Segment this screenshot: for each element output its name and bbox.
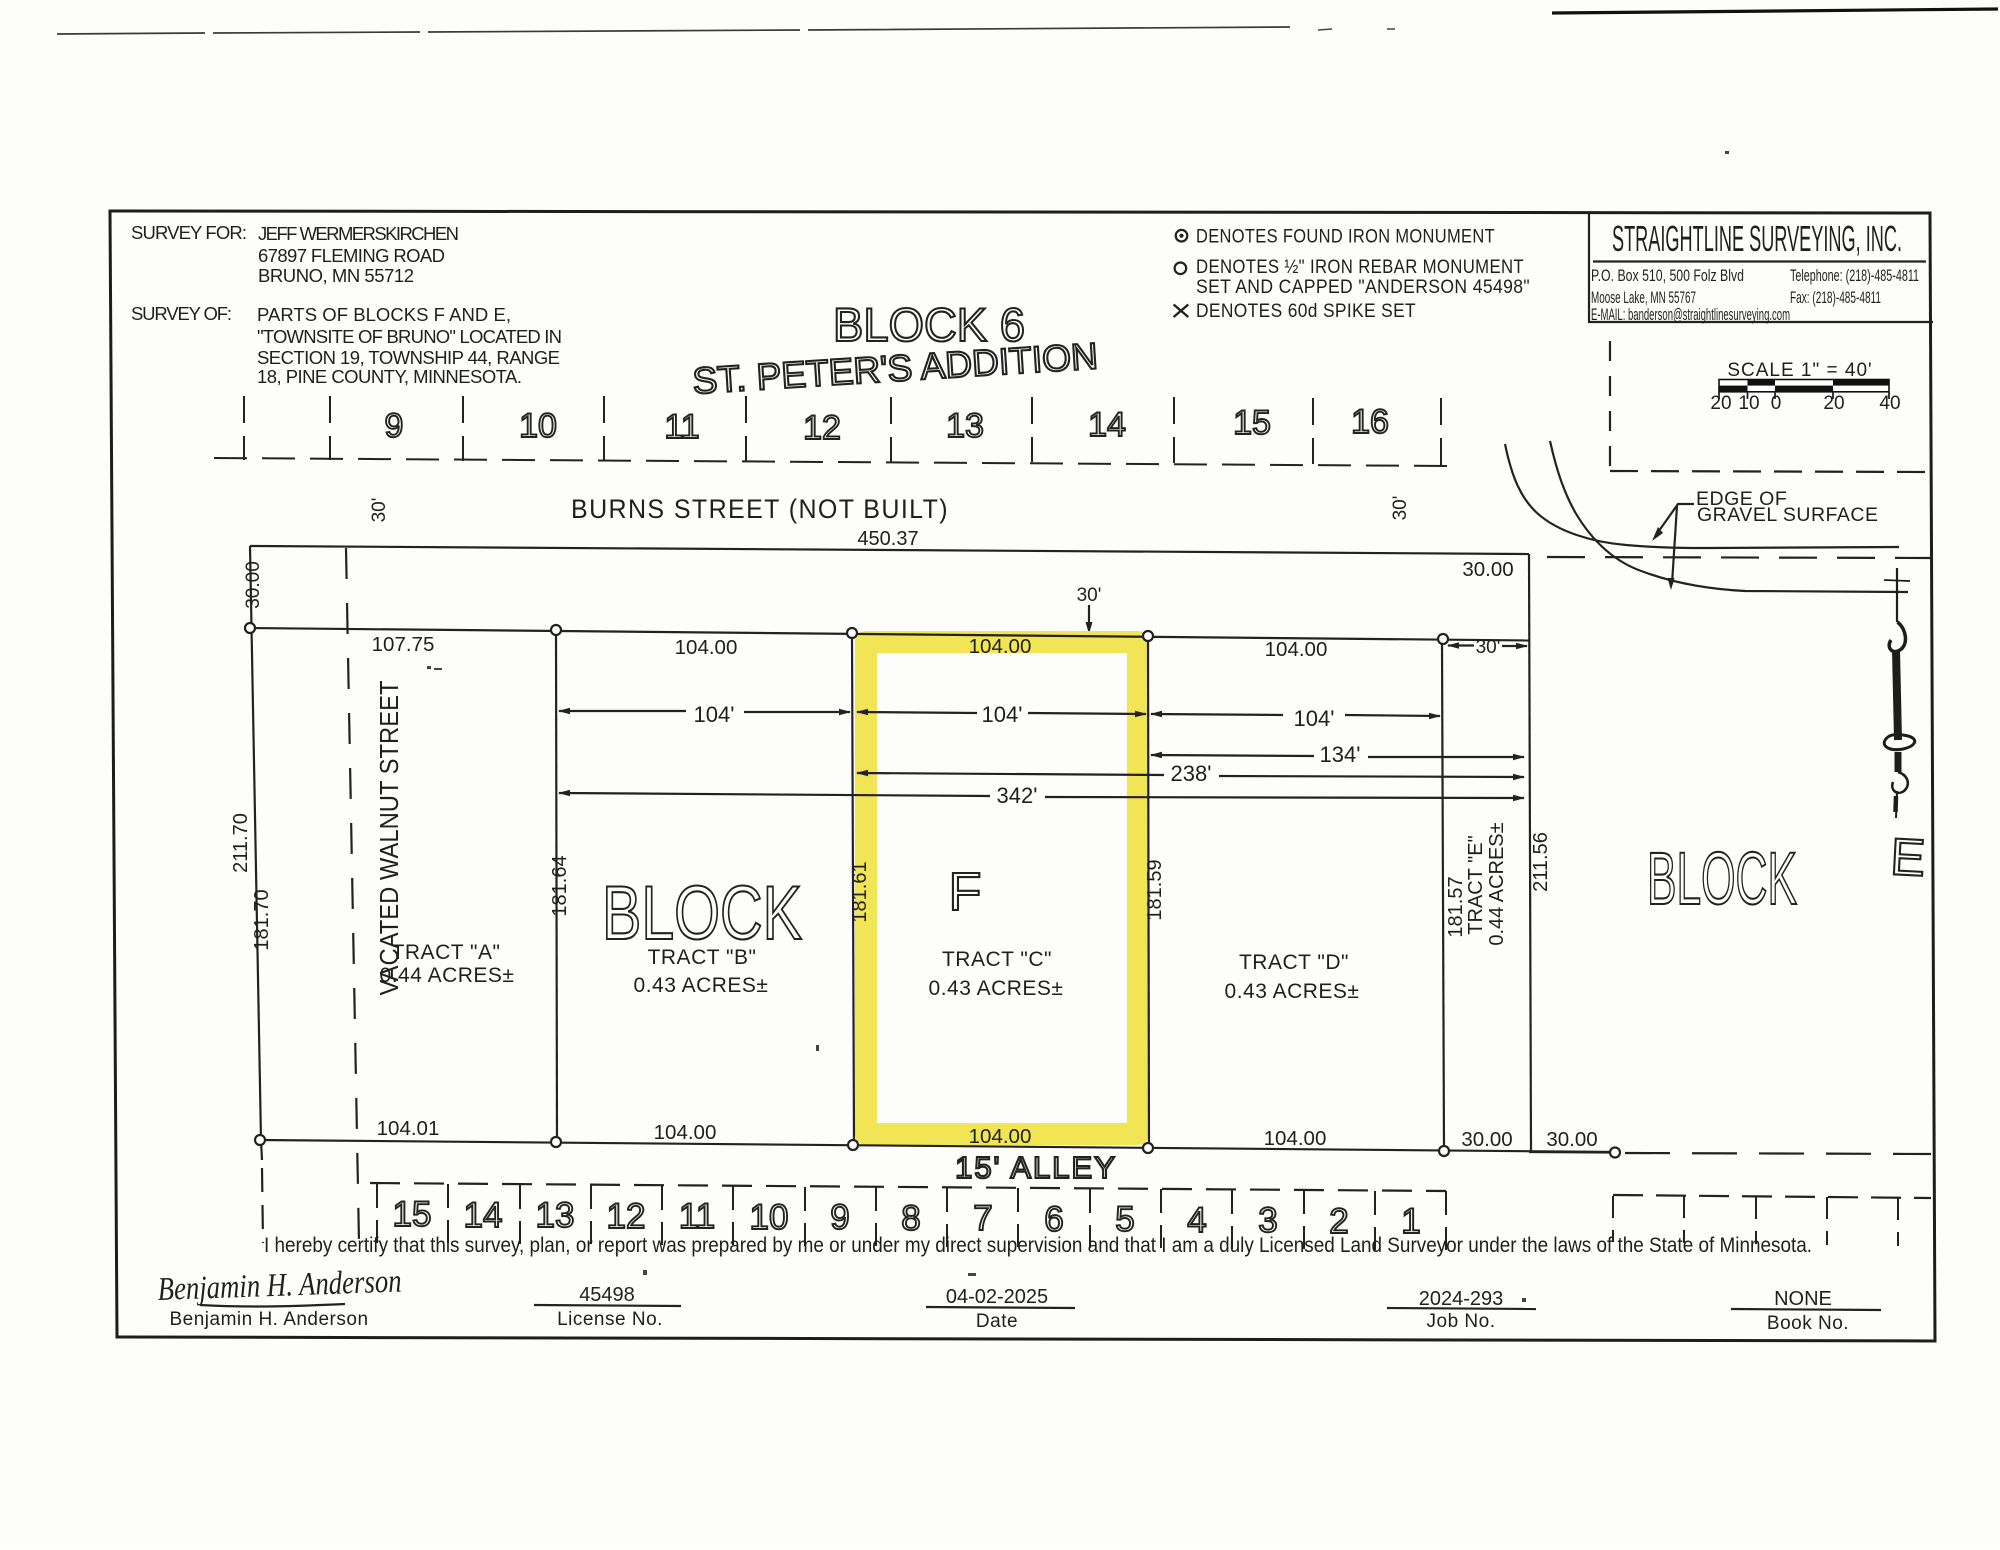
svg-text:I hereby certify that this sur: I hereby certify that this survey, plan,… — [264, 1234, 1812, 1257]
svg-text:BLOCK: BLOCK — [602, 871, 802, 956]
svg-text:104': 104' — [694, 702, 735, 727]
svg-text:BURNS STREET (NOT BUILT): BURNS STREET (NOT BUILT) — [571, 494, 949, 524]
svg-text:TRACT "E": TRACT "E" — [1465, 835, 1487, 934]
svg-text:450.37: 450.37 — [857, 528, 918, 550]
svg-text:GRAVEL SURFACE: GRAVEL SURFACE — [1697, 504, 1878, 526]
svg-text:30.00: 30.00 — [1462, 558, 1513, 581]
svg-text:211.56: 211.56 — [1530, 832, 1552, 892]
svg-text:104.01: 104.01 — [377, 1117, 440, 1140]
svg-text:Fax: (218)-485-4811: Fax: (218)-485-4811 — [1790, 289, 1881, 307]
svg-text:14: 14 — [1088, 406, 1126, 444]
svg-text:Telephone: (218)-485-4811: Telephone: (218)-485-4811 — [1790, 267, 1919, 285]
svg-text:181.61: 181.61 — [849, 861, 871, 922]
svg-text:SURVEY FOR:: SURVEY FOR: — [131, 222, 247, 243]
svg-text:211.70: 211.70 — [230, 813, 252, 873]
svg-text:0.43 ACRES±: 0.43 ACRES± — [929, 977, 1064, 1000]
svg-text:30': 30' — [1077, 585, 1102, 606]
svg-text:12: 12 — [803, 409, 841, 447]
svg-text:TRACT "D": TRACT "D" — [1239, 951, 1349, 974]
svg-text:0.44 ACRES±: 0.44 ACRES± — [380, 964, 515, 987]
svg-text:Date: Date — [976, 1311, 1018, 1332]
svg-text:TRACT "A": TRACT "A" — [392, 941, 501, 964]
svg-text:30.00: 30.00 — [1546, 1128, 1597, 1151]
svg-text:BRUNO, MN 55712: BRUNO, MN 55712 — [258, 265, 414, 286]
svg-text:Book No.: Book No. — [1767, 1313, 1849, 1334]
svg-text:30': 30' — [1390, 496, 1411, 521]
svg-text:30.00: 30.00 — [243, 561, 264, 609]
svg-text:10: 10 — [1738, 393, 1759, 414]
svg-text:2024-293: 2024-293 — [1419, 1288, 1504, 1310]
svg-text:134': 134' — [1320, 742, 1361, 767]
svg-text:9: 9 — [385, 407, 404, 445]
svg-text:8: 8 — [901, 1199, 920, 1238]
svg-text:104.00: 104.00 — [969, 1125, 1032, 1148]
svg-text:SECTION 19, TOWNSHIP 44, RANGE: SECTION 19, TOWNSHIP 44, RANGE — [257, 347, 560, 368]
svg-text:16: 16 — [1351, 403, 1389, 441]
svg-text:7: 7 — [973, 1199, 992, 1238]
svg-text:15: 15 — [393, 1195, 432, 1234]
svg-text:0.43 ACRES±: 0.43 ACRES± — [634, 974, 769, 997]
svg-text:0.43 ACRES±: 0.43 ACRES± — [1225, 980, 1360, 1003]
svg-text:10: 10 — [750, 1198, 789, 1237]
svg-text:181.64: 181.64 — [549, 855, 571, 916]
svg-text:PARTS OF BLOCKS F AND E,: PARTS OF BLOCKS F AND E, — [257, 304, 511, 325]
svg-text:04-02-2025: 04-02-2025 — [946, 1286, 1048, 1308]
svg-text:SURVEY OF:: SURVEY OF: — [131, 303, 232, 324]
svg-text:NONE: NONE — [1774, 1288, 1832, 1310]
svg-text:"TOWNSITE OF BRUNO" LOCATED IN: "TOWNSITE OF BRUNO" LOCATED IN — [257, 326, 562, 347]
svg-text:STRAIGHTLINE SURVEYING, INC.: STRAIGHTLINE SURVEYING, INC. — [1612, 218, 1902, 259]
svg-text:E: E — [1889, 828, 1927, 888]
svg-text:13: 13 — [946, 407, 984, 445]
svg-text:30': 30' — [1476, 637, 1501, 658]
svg-text:13: 13 — [536, 1196, 575, 1235]
svg-text:BLOCK: BLOCK — [1647, 837, 1797, 920]
svg-text:DENOTES FOUND IRON MONUMENT: DENOTES FOUND IRON MONUMENT — [1196, 226, 1495, 248]
svg-text:181.70: 181.70 — [251, 889, 273, 950]
svg-text:License No.: License No. — [557, 1309, 663, 1330]
svg-text:30.00: 30.00 — [1461, 1128, 1512, 1151]
svg-text:18, PINE COUNTY, MINNESOTA.: 18, PINE COUNTY, MINNESOTA. — [257, 366, 522, 387]
svg-text:F: F — [949, 862, 982, 922]
svg-text:107.75: 107.75 — [372, 633, 435, 656]
svg-text:9: 9 — [830, 1198, 849, 1237]
svg-text:15: 15 — [1233, 404, 1271, 442]
svg-text:20: 20 — [1710, 393, 1731, 414]
svg-text:E-MAIL: banderson@straightline: E-MAIL: banderson@straightlinesurveying.… — [1591, 306, 1790, 324]
svg-text:104': 104' — [1294, 706, 1335, 731]
svg-text:DENOTES ½" IRON REBAR MONUMENT: DENOTES ½" IRON REBAR MONUMENT — [1196, 256, 1524, 278]
svg-text:20: 20 — [1823, 393, 1844, 414]
svg-text:12: 12 — [607, 1197, 646, 1236]
svg-text:Job No.: Job No. — [1427, 1311, 1496, 1332]
svg-text:P.O. Box 510, 500 Folz Blvd: P.O. Box 510, 500 Folz Blvd — [1591, 267, 1744, 285]
svg-text:SCALE 1" = 40': SCALE 1" = 40' — [1727, 360, 1872, 381]
svg-text:104.00: 104.00 — [1264, 1127, 1327, 1150]
svg-text:104.00: 104.00 — [1265, 638, 1328, 661]
svg-text:0.44 ACRES±: 0.44 ACRES± — [1486, 822, 1508, 945]
svg-text:0: 0 — [1771, 393, 1782, 414]
svg-text:JEFF WERMERSKIRCHEN: JEFF WERMERSKIRCHEN — [258, 223, 459, 244]
svg-text:45498: 45498 — [579, 1284, 635, 1306]
svg-text:10: 10 — [519, 407, 557, 445]
svg-text:11: 11 — [664, 408, 699, 446]
svg-text:104.00: 104.00 — [654, 1121, 717, 1144]
svg-text:104.00: 104.00 — [675, 636, 738, 659]
svg-text:238': 238' — [1171, 761, 1212, 786]
svg-text:14: 14 — [464, 1196, 503, 1235]
svg-text:Moose Lake, MN 55767: Moose Lake, MN 55767 — [1591, 289, 1696, 307]
svg-text:104.00: 104.00 — [969, 635, 1032, 658]
svg-text:15' ALLEY: 15' ALLEY — [955, 1150, 1117, 1185]
svg-text:40: 40 — [1879, 393, 1900, 414]
svg-text:181.59: 181.59 — [1144, 859, 1166, 920]
svg-text:104': 104' — [982, 702, 1023, 727]
svg-text:67897 FLEMING ROAD: 67897 FLEMING ROAD — [258, 245, 445, 266]
svg-text:TRACT "C": TRACT "C" — [942, 948, 1052, 971]
svg-text:181.57: 181.57 — [1445, 876, 1467, 937]
svg-text:30': 30' — [369, 498, 390, 523]
svg-text:11: 11 — [679, 1197, 715, 1236]
svg-text:Benjamin H. Anderson: Benjamin H. Anderson — [169, 1309, 368, 1330]
svg-text:342': 342' — [997, 783, 1038, 808]
svg-text:SET AND CAPPED "ANDERSON 45498: SET AND CAPPED "ANDERSON 45498" — [1196, 276, 1530, 298]
svg-text:DENOTES 60d SPIKE SET: DENOTES 60d SPIKE SET — [1196, 300, 1416, 322]
